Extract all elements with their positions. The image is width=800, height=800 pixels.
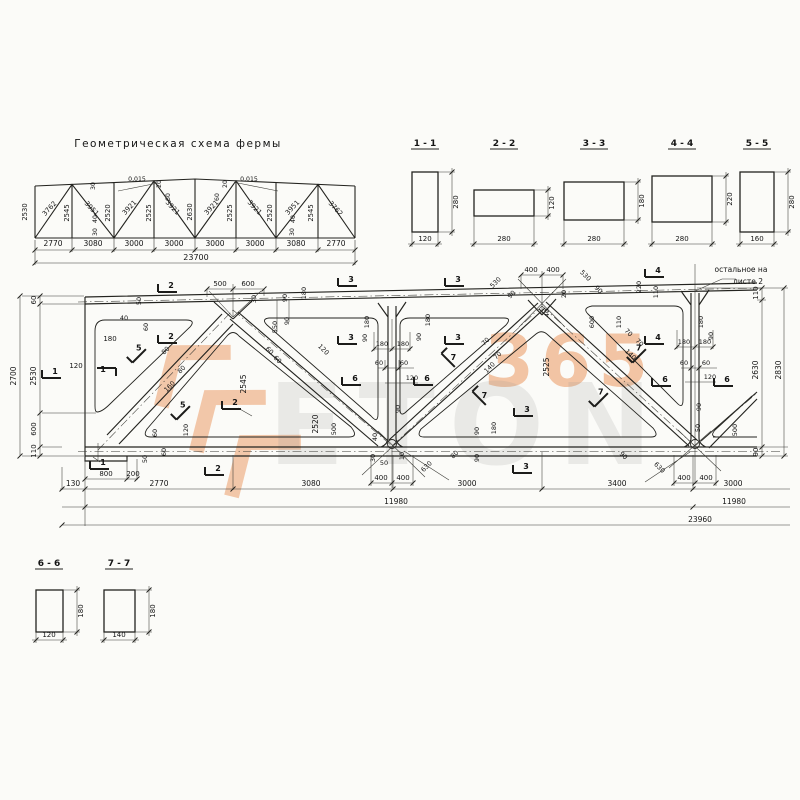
main-dim-label: 530 (578, 268, 592, 282)
scheme-dim-label: 23700 (183, 253, 208, 262)
cross-section-7-7: 7 - 7140180 (100, 559, 157, 643)
scheme-dim-label: 40 (290, 215, 297, 223)
main-dim-label: 3000 (457, 479, 476, 488)
section-cut-number: 6 (424, 374, 430, 383)
main-dim-label: 180 (490, 422, 498, 434)
main-dim-label: 50 (380, 459, 388, 467)
section-cut-number: 3 (524, 405, 530, 414)
scheme-dim-label: 30 (92, 228, 99, 236)
cross-section-2-2: 2 - 2280120 (470, 139, 556, 247)
scheme-dim-label: 3000 (164, 239, 183, 248)
main-dim-label: 180 (678, 338, 690, 346)
section-width-label: 120 (418, 235, 431, 243)
section-cut-number: 4 (655, 266, 661, 275)
section-cut-number: 6 (352, 374, 358, 383)
main-dim-label: 90 (695, 403, 703, 411)
scheme-dim-label: 2530 (21, 203, 29, 220)
scheme-dim-label: 2520 (266, 204, 274, 221)
section-cut-marker: 5 (125, 341, 147, 363)
main-dim-label: 60 (142, 323, 150, 331)
section-cut-marker: 1 (42, 367, 61, 378)
main-dim-label: 60 (400, 359, 408, 367)
section-width-label: 280 (497, 235, 510, 243)
note-line1: остальное на (715, 265, 768, 274)
section-height-label: 280 (452, 195, 460, 208)
scheme-title: Геометрическая схема фермы (74, 138, 282, 150)
scheme-dim-label: 2545 (63, 204, 71, 221)
scheme-dimension-labels: 2530376239513921392139213921395137622545… (21, 176, 346, 262)
section-height-label: 220 (726, 192, 734, 205)
scheme-dim-label: 20 (222, 180, 229, 188)
main-dim-label: 30 (250, 295, 258, 303)
watermark-word: ETON (268, 361, 666, 491)
section-height-label: 180 (77, 604, 85, 617)
cross-section-3-3: 3 - 3280180 (560, 139, 646, 247)
main-dim-label: 60 (151, 429, 159, 437)
section-cut-marker: 1 (97, 365, 116, 376)
section-title: 6 - 6 (38, 559, 61, 569)
main-dim-label: 2530 (29, 366, 38, 385)
scheme-dim-label: 2770 (326, 239, 345, 248)
section-cut-number: 1 (100, 365, 106, 374)
section-cut-number: 3 (523, 462, 529, 471)
section-title: 7 - 7 (108, 559, 131, 569)
main-dim-label: 800 (99, 470, 112, 478)
scheme-dim-label: 2525 (145, 204, 153, 221)
main-dim-label: 60 (702, 359, 710, 367)
scheme-dim-label: 60 (165, 193, 172, 201)
main-dim-label: 180 (376, 340, 388, 348)
main-dim-label: 600 (588, 316, 596, 328)
section-cut-marker: 3 (445, 275, 464, 286)
section-cut-number: 2 (168, 281, 174, 290)
section-cut-number: 7 (598, 388, 604, 397)
main-dim-label: 110 (615, 316, 623, 328)
main-dim-label: 180 (103, 335, 116, 343)
section-cut-number: 6 (662, 375, 668, 384)
main-dim-label: 180 (424, 314, 432, 326)
main-dim-label: 200 (126, 470, 139, 478)
section-cut-number: 6 (724, 375, 730, 384)
scheme-dim-label: 3000 (245, 239, 264, 248)
main-dim-label: 90 (283, 317, 291, 325)
main-dim-label: 120 (182, 424, 190, 436)
main-dim-label: 50 (694, 424, 702, 432)
main-dim-label: 90 (506, 289, 518, 301)
sheet-note: остальное на листе 2 (715, 265, 768, 286)
scheme-dim-label: 3080 (286, 239, 305, 248)
main-dim-label: 60 (160, 448, 168, 456)
note-line2: листе 2 (733, 277, 763, 286)
truss-working-drawing: 365 ETON Геометрическая схема фермы 2530… (0, 0, 800, 800)
main-dim-label: 500 (330, 423, 338, 435)
cross-section-5-5: 5 - 5160280 (736, 139, 796, 247)
scheme-dim-label: 30 (90, 182, 97, 190)
main-dim-label: 40 (120, 314, 128, 322)
main-dim-label: 530 (488, 275, 502, 289)
section-cut-number: 5 (180, 401, 186, 410)
section-cut-marker: 2 (205, 464, 224, 475)
scheme-dim-label: 20 (156, 180, 163, 188)
main-dim-label: 400 (699, 474, 712, 482)
main-dim-label: 3000 (723, 479, 742, 488)
section-cut-number: 3 (455, 275, 461, 284)
geometric-scheme: Геометрическая схема фермы 2530376239513… (21, 138, 358, 266)
scheme-dim-label: 3080 (83, 239, 102, 248)
section-cut-marker: 2 (158, 332, 177, 343)
scheme-dim-label: 2525 (226, 204, 234, 221)
scheme-dim-label: 3921 (246, 199, 264, 217)
cross-section-1-1: 1 - 1120280 (408, 139, 460, 247)
main-dim-label: 2630 (751, 360, 760, 379)
main-dim-label: 60 (375, 359, 383, 367)
main-dim-label: 180 (300, 287, 308, 299)
main-dim-label: 10 (398, 452, 406, 460)
main-dim-label: 400 (374, 474, 387, 482)
section-title: 1 - 1 (414, 139, 437, 149)
main-dim-label: 50 (135, 297, 143, 305)
section-cut-marker: 5 (169, 398, 191, 420)
main-dim-label: 2520 (311, 414, 320, 433)
main-dim-label: 120 (406, 374, 418, 382)
main-dim-label: 400 (677, 474, 690, 482)
main-dim-label: 3080 (301, 479, 320, 488)
section-cut-number: 3 (348, 333, 354, 342)
scheme-dim-label: 40 (92, 215, 99, 223)
section-cut-number: 4 (655, 333, 661, 342)
main-dim-label: 120 (69, 362, 82, 370)
section-cut-number: 2 (215, 464, 221, 473)
section-cut-number: 2 (232, 398, 238, 407)
section-height-label: 120 (548, 196, 556, 209)
section-cut-marker: 3 (338, 333, 357, 344)
main-dim-label: 180 (397, 340, 409, 348)
main-dim-label: 130 (66, 479, 81, 488)
section-width-label: 120 (42, 631, 55, 639)
scheme-dim-label: 0,015 (240, 176, 258, 183)
section-width-label: 280 (675, 235, 688, 243)
section-cut-marker: 1 (90, 458, 109, 469)
main-dim-label: 11980 (722, 497, 746, 506)
cross-section-4-4: 4 - 4280220 (648, 139, 734, 247)
section-cut-number: 7 (636, 344, 642, 353)
section-cut-marker: 4 (645, 266, 664, 277)
section-width-label: 140 (112, 631, 125, 639)
main-dim-label: 40 (543, 309, 551, 317)
main-dim-label: 110 (30, 444, 38, 457)
main-dim-label: 500 (213, 280, 226, 288)
scheme-dim-label: 2545 (307, 204, 315, 221)
scheme-dim-label: 2770 (43, 239, 62, 248)
section-title: 4 - 4 (671, 139, 694, 149)
main-dim-label: 90 (394, 405, 402, 413)
section-width-label: 160 (750, 235, 763, 243)
scheme-dim-label: 2520 (104, 204, 112, 221)
main-dim-label: 90 (361, 334, 369, 342)
main-dim-label: 60 (30, 296, 38, 305)
section-height-label: 280 (788, 195, 796, 208)
main-dim-label: 30 (369, 454, 377, 462)
section-cut-number: 7 (482, 391, 488, 400)
scheme-dim-label: 3000 (205, 239, 224, 248)
main-dim-label: 2545 (239, 374, 248, 393)
main-dim-label: 2770 (149, 479, 168, 488)
main-dim-label: 2830 (774, 360, 783, 379)
main-dim-label: 23960 (688, 515, 712, 524)
main-dim-label: 90 (473, 454, 481, 462)
scheme-dim-label: 3000 (124, 239, 143, 248)
main-dim-label: 500 (731, 424, 739, 436)
section-title: 2 - 2 (493, 139, 516, 149)
section-width-label: 280 (587, 235, 600, 243)
section-cut-number: 3 (455, 333, 461, 342)
main-dim-label: 90 (752, 448, 760, 457)
section-height-label: 180 (149, 604, 157, 617)
section-cut-number: 5 (136, 344, 142, 353)
scheme-dim-label: 3762 (327, 200, 345, 218)
main-dim-label: 110 (752, 286, 760, 299)
main-dim-label: 400 (524, 266, 537, 274)
main-dim-label: 50 (141, 455, 149, 463)
section-cut-number: 3 (348, 275, 354, 284)
drawing-sheet: 365 ETON Геометрическая схема фермы 2530… (0, 0, 800, 800)
main-dim-label: 20 (560, 290, 568, 298)
main-dim-label: 600 (30, 422, 38, 435)
main-dim-label: 3400 (607, 479, 626, 488)
scheme-dim-label: 3951 (83, 200, 101, 218)
section-cut-marker: 6 (714, 375, 733, 386)
main-dim-label: 2700 (9, 366, 18, 385)
scheme-dim-label: 30 (289, 228, 296, 236)
main-dim-label: 60 (680, 359, 688, 367)
scheme-dim-label: 60 (214, 193, 221, 201)
main-dim-label: 180 (363, 316, 371, 328)
main-dim-label: 90 (707, 332, 715, 340)
cross-section-6-6: 6 - 6120180 (32, 559, 85, 643)
main-dim-label: 90 (473, 427, 481, 435)
section-title: 3 - 3 (583, 139, 606, 149)
section-height-label: 180 (638, 194, 646, 207)
main-dim-label: 180 (697, 316, 705, 328)
section-cut-number: 2 (168, 332, 174, 341)
main-dim-label: 400 (396, 474, 409, 482)
main-dim-label: 110 (652, 286, 660, 298)
main-dim-label: 550 (271, 321, 279, 333)
main-dim-label: 60 (264, 345, 276, 357)
main-dim-label: 120 (316, 342, 330, 356)
main-dim-label: 90 (415, 333, 423, 341)
scheme-dim-label: 0,015 (128, 176, 146, 183)
section-cut-marker: 2 (158, 281, 177, 292)
main-dim-label: 90 (281, 294, 289, 302)
section-cut-marker: 3 (338, 275, 357, 286)
main-dim-label: 600 (241, 280, 254, 288)
scheme-dim-label: 2630 (186, 203, 194, 220)
main-dim-label: 11980 (384, 497, 408, 506)
scheme-dim-label: 3951 (284, 199, 302, 217)
section-cut-marker: 3 (445, 333, 464, 344)
section-cut-number: 7 (451, 353, 457, 362)
section-cut-number: 1 (52, 367, 58, 376)
main-dim-label: 400 (546, 266, 559, 274)
main-dim-label: 220 (635, 281, 643, 293)
section-cut-number: 1 (100, 458, 106, 467)
main-dim-label: 40 (371, 433, 379, 441)
main-dim-label: 2525 (542, 357, 551, 376)
section-title: 5 - 5 (746, 139, 769, 149)
